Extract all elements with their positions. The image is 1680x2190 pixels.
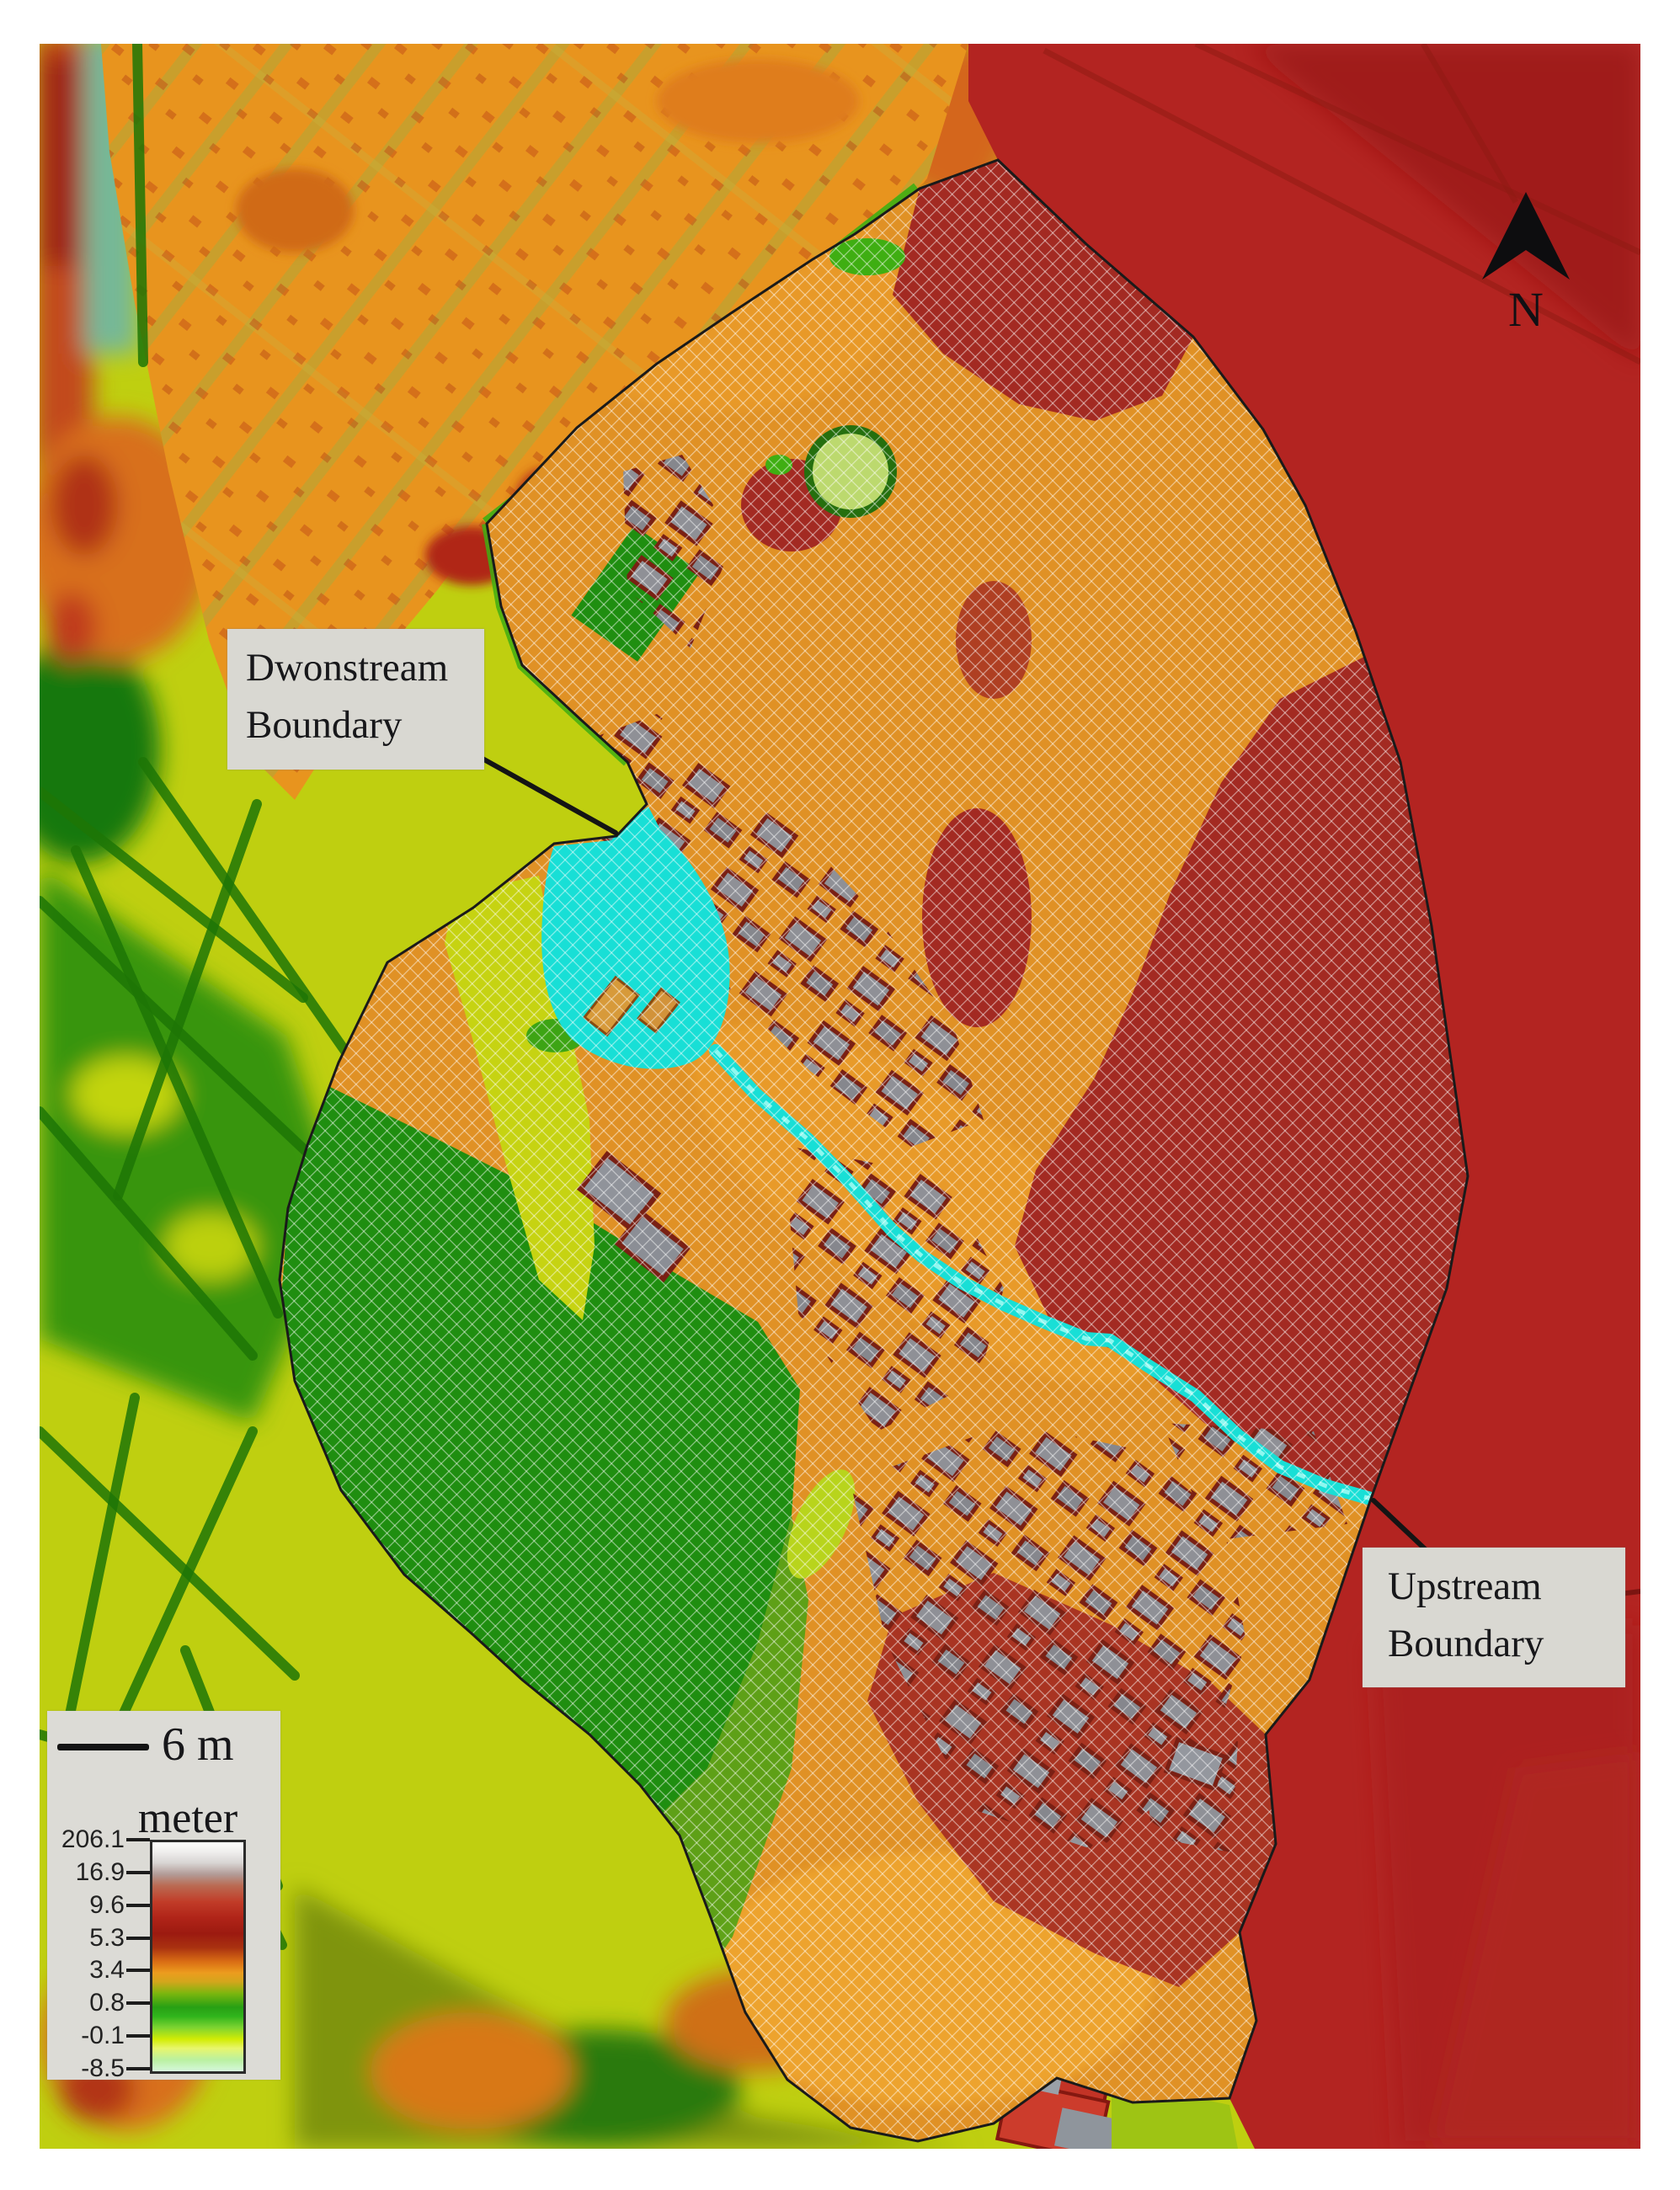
colorbar-tick	[126, 2067, 150, 2070]
north-label: N	[1492, 281, 1560, 338]
upstream-label-line2: Boundary	[1388, 1615, 1625, 1672]
colorbar-tick-label: 0.8	[24, 1990, 125, 2017]
colorbar-tick-label: 206.1	[24, 1826, 125, 1853]
downstream-boundary-label: Dwonstream Boundary	[227, 629, 484, 770]
colorbar-tick	[126, 1904, 150, 1907]
colorbar-tick	[126, 1937, 150, 1940]
scale-bar-line	[57, 1744, 149, 1750]
colorbar-tick-label: 5.3	[24, 1925, 125, 1952]
figure-page: Dwonstream Boundary Upstream Boundary N …	[0, 0, 1680, 2190]
elevation-colorbar	[150, 1840, 246, 2074]
colorbar-tick	[126, 1838, 150, 1841]
downstream-label-line1: Dwonstream	[246, 639, 484, 696]
upstream-label-line1: Upstream	[1388, 1558, 1625, 1615]
colorbar-tick-label: 9.6	[24, 1892, 125, 1919]
colorbar-tick	[126, 1871, 150, 1874]
colorbar-tick-label: 3.4	[24, 1957, 125, 1984]
downstream-label-line2: Boundary	[246, 696, 484, 754]
colorbar-tick	[126, 1969, 150, 1972]
upstream-boundary-label: Upstream Boundary	[1363, 1548, 1625, 1687]
colorbar-tick	[126, 2001, 150, 2005]
colorbar-tick	[126, 2034, 150, 2038]
colorbar-tick-label: -0.1	[24, 2022, 125, 2049]
colorbar-tick-label: -8.5	[24, 2055, 125, 2082]
legend-title: meter	[99, 1793, 276, 1843]
colorbar-tick-label: 16.9	[24, 1859, 125, 1886]
scale-bar-label: 6 m	[162, 1718, 234, 1772]
